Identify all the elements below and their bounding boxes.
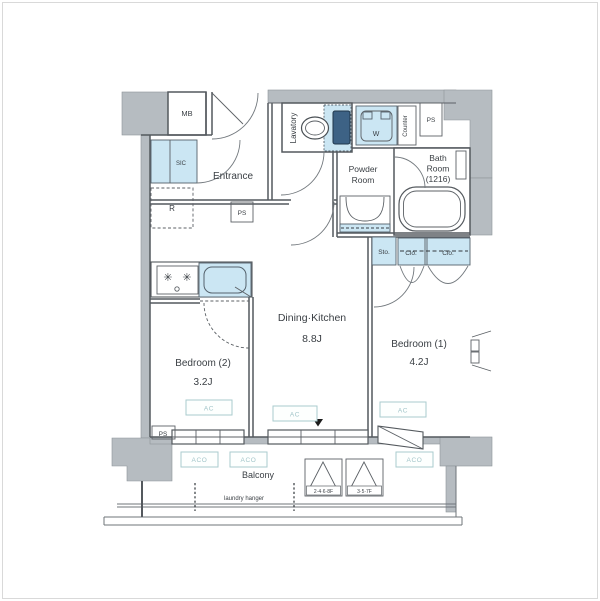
label-ac-bedroom1: AC bbox=[398, 408, 408, 415]
label-sic: SIC bbox=[176, 161, 187, 167]
label-aco-3: ACO bbox=[407, 457, 423, 464]
label-aco-1: ACO bbox=[192, 457, 208, 464]
floorplan-drawing: ✳ ✳ bbox=[0, 0, 600, 601]
label-bedroom1-size: 4.2J bbox=[410, 357, 429, 368]
label-ps-bottom: PS bbox=[159, 431, 168, 438]
floorplan-page: ✳ ✳ bbox=[0, 0, 600, 601]
label-dk-name: Dining·Kitchen bbox=[278, 312, 346, 324]
label-bedroom2-size: 3.2J bbox=[194, 377, 213, 388]
label-refrigerator: R bbox=[169, 204, 175, 213]
label-bedroom1-name: Bedroom (1) bbox=[391, 339, 447, 350]
label-entrance: Entrance bbox=[213, 171, 253, 182]
toilet-tank bbox=[333, 111, 350, 144]
label-ac-dk: AC bbox=[290, 412, 300, 419]
label-dk-size: 8.8J bbox=[302, 333, 322, 345]
label-balcony: Balcony bbox=[242, 470, 275, 480]
label-powder-2: Room bbox=[352, 175, 375, 185]
label-bath-2: Room bbox=[427, 164, 450, 174]
label-washer: W bbox=[373, 131, 380, 138]
label-bath-1: Bath bbox=[429, 153, 447, 163]
label-ac-bedroom2: AC bbox=[204, 406, 214, 413]
label-meter-box: MB bbox=[181, 109, 192, 118]
label-laundry-hanger: laundry hanger bbox=[224, 496, 264, 502]
label-floors-odd: 3·5·7F bbox=[357, 489, 372, 495]
label-powder-1: Powder bbox=[349, 164, 378, 174]
burner-icon: ✳ bbox=[182, 272, 191, 284]
label-ps-entrance: PS bbox=[238, 210, 247, 217]
label-lavatory: Lavatory bbox=[289, 113, 298, 144]
burner-icon: ✳ bbox=[163, 272, 172, 284]
shoe-closet bbox=[151, 140, 197, 183]
label-floors-even: 2·4·6·8F bbox=[314, 489, 333, 495]
label-bedroom2-name: Bedroom (2) bbox=[175, 358, 231, 369]
label-storage: Sto. bbox=[378, 249, 390, 256]
label-aco-2: ACO bbox=[241, 457, 257, 464]
label-bath-3: (1216) bbox=[426, 174, 451, 184]
label-closet-1: Clo. bbox=[405, 250, 417, 257]
label-ps-top: PS bbox=[427, 117, 436, 124]
label-closet-2: Clo. bbox=[442, 250, 454, 257]
label-counter: Counter bbox=[403, 115, 409, 136]
